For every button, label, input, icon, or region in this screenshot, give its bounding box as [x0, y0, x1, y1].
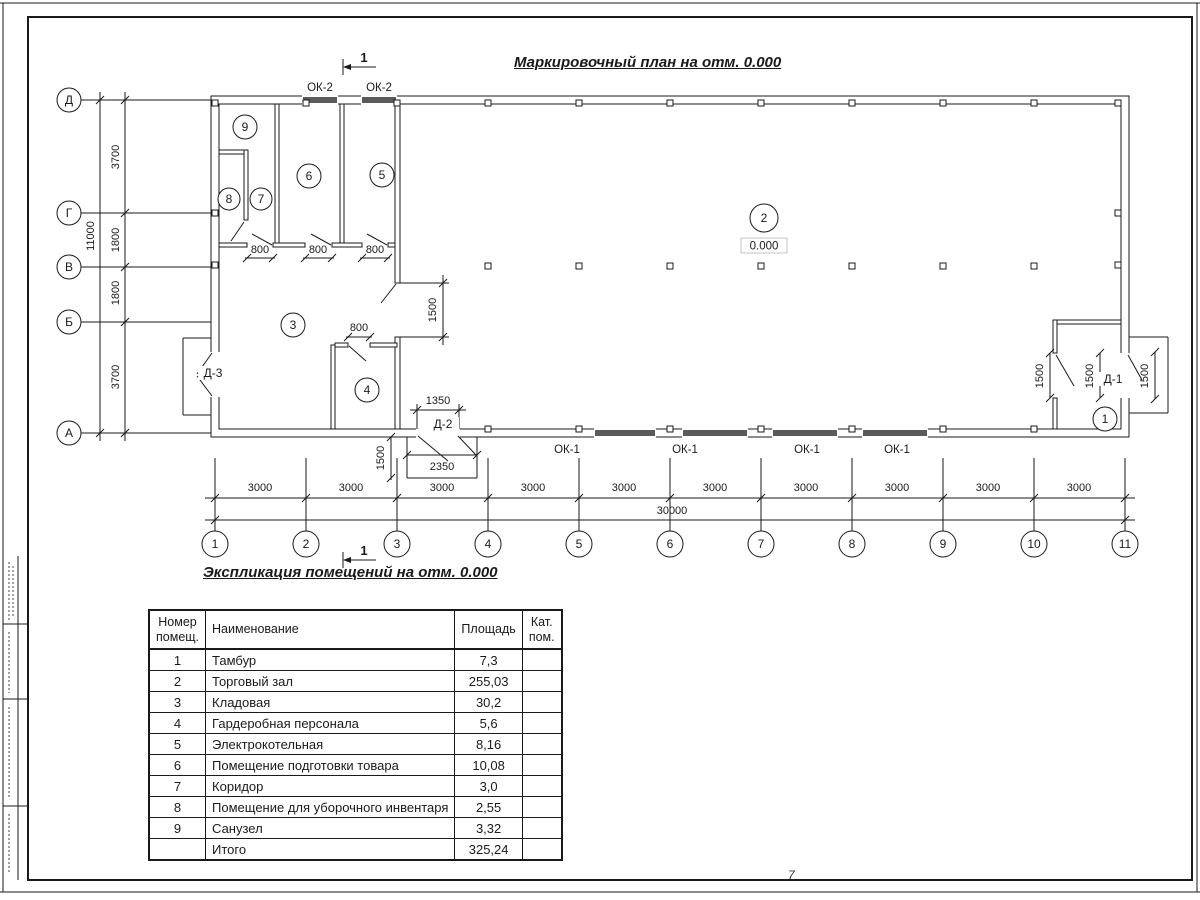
cell-number: 6: [149, 755, 206, 776]
cell-number: 4: [149, 713, 206, 734]
col-header-area: Площадь: [455, 610, 522, 649]
axis-label: 5: [576, 537, 583, 551]
table-row-total: Итого 325,24: [149, 839, 562, 861]
dim-label: 3000: [1067, 482, 1091, 494]
dim-label: 800: [251, 244, 269, 256]
dim-label: 3000: [248, 482, 272, 494]
door-label: Д-3: [204, 366, 223, 380]
cell-name: Коридор: [206, 776, 455, 797]
cell-cat: [522, 818, 561, 839]
room-bubbles: [218, 115, 1117, 431]
cell-cat: [522, 671, 561, 692]
dim-label: 800: [366, 244, 384, 256]
col-header-name: Наименование: [206, 610, 455, 649]
window-label: ОК-1: [794, 444, 820, 456]
cell-cat: [522, 776, 561, 797]
dim-label: 3000: [430, 482, 454, 494]
cell-name: Электрокотельная: [206, 734, 455, 755]
dim-label: 3000: [521, 482, 545, 494]
room-schedule-table: Номер помещ. Наименование Площадь Кат. п…: [148, 609, 563, 861]
dim-label: 3000: [976, 482, 1000, 494]
cell-area: 10,08: [455, 755, 522, 776]
table-row: 8 Помещение для уборочного инвентаря 2,5…: [149, 797, 562, 818]
page-title: Маркировочный план на отм. 0.000: [514, 54, 781, 71]
columns: [212, 100, 1121, 432]
table-row: 9 Санузел 3,32: [149, 818, 562, 839]
dim-label: 1800: [110, 281, 122, 305]
cell-cat: [522, 713, 561, 734]
cell-name: Помещение подготовки товара: [206, 755, 455, 776]
axis-label: 6: [667, 537, 674, 551]
elevation-mark: 0.000: [750, 241, 779, 253]
dim-label: 1500: [1034, 364, 1046, 388]
cell-name: Гардеробная персонала: [206, 713, 455, 734]
cell-area: 3,32: [455, 818, 522, 839]
room-number: 3: [290, 318, 297, 332]
section-label: 1: [360, 543, 367, 558]
axis-label: В: [65, 260, 73, 274]
axis-grid-left: [57, 88, 211, 445]
dim-label: 1500: [1084, 364, 1096, 388]
axis-label: 11: [1119, 537, 1132, 551]
cell-number: 8: [149, 797, 206, 818]
window-label: ОК-1: [672, 444, 698, 456]
room-number: 7: [258, 192, 265, 206]
axis-label: 9: [940, 537, 947, 551]
col-header-cat: Кат. пом.: [522, 610, 561, 649]
cell-area: 7,3: [455, 649, 522, 671]
cell-area: 255,03: [455, 671, 522, 692]
dim-label: 30000: [657, 505, 688, 517]
axis-label: Б: [65, 315, 73, 329]
dim-label: 800: [309, 244, 327, 256]
room-bubble-labels: 9 6 5 8 7 3 4 2 1 0.000: [226, 120, 1109, 426]
dim-label: 2350: [430, 461, 454, 473]
cell-number: 7: [149, 776, 206, 797]
cell-cat: [522, 692, 561, 713]
axis-grid-bottom-labels: 1 2 3 4 5 6 7 8 9 10 11 3000 3000 3000 3…: [212, 482, 1132, 551]
axis-label: 3: [394, 537, 401, 551]
cell-name: Кладовая: [206, 692, 455, 713]
cell-cat: [522, 734, 561, 755]
dim-label: 1500: [427, 298, 439, 322]
cell-number: [149, 839, 206, 861]
drawing-sheet: 1 2 3 4 5 6 7 8 9 10 11 3000 3000 3000 3…: [0, 0, 1200, 900]
cell-cat: [522, 649, 561, 671]
room-number: 5: [379, 168, 386, 182]
axis-label: 1: [212, 537, 219, 551]
page-mark: 7: [788, 868, 795, 882]
table-row: 7 Коридор 3,0: [149, 776, 562, 797]
dim-label: 3700: [110, 145, 122, 169]
door-label: Д-2: [434, 417, 453, 431]
cell-area: 5,6: [455, 713, 522, 734]
axis-label: А: [65, 426, 73, 440]
cell-number: 1: [149, 649, 206, 671]
dim-label: 3000: [703, 482, 727, 494]
room-number: 8: [226, 192, 233, 206]
table-row: 6 Помещение подготовки товара 10,08: [149, 755, 562, 776]
axis-label: 4: [485, 537, 492, 551]
dim-label: 1800: [110, 228, 122, 252]
axis-label: 10: [1027, 537, 1041, 551]
cell-name: Санузел: [206, 818, 455, 839]
cell-name: Тамбур: [206, 649, 455, 671]
cell-name: Итого: [206, 839, 455, 861]
room-number: 4: [364, 383, 371, 397]
room-number: 9: [242, 120, 249, 134]
window-label: ОК-2: [366, 82, 392, 94]
col-header-number: Номер помещ.: [149, 610, 206, 649]
cell-number: 5: [149, 734, 206, 755]
axis-label: 7: [758, 537, 765, 551]
axis-label: 2: [303, 537, 310, 551]
room-number: 6: [306, 169, 313, 183]
cell-area: 2,55: [455, 797, 522, 818]
table-row: 3 Кладовая 30,2: [149, 692, 562, 713]
cell-cat: [522, 839, 561, 861]
cell-number: 3: [149, 692, 206, 713]
door-label: Д-1: [1104, 372, 1123, 386]
window-label: ОК-1: [554, 444, 580, 456]
window-label: ОК-2: [307, 82, 333, 94]
dim-label: 800: [350, 322, 368, 334]
cell-number: 9: [149, 818, 206, 839]
cell-cat: [522, 797, 561, 818]
dim-label: 1500: [375, 446, 387, 470]
dim-label: 3000: [794, 482, 818, 494]
door-name-labels: [198, 366, 1130, 431]
dim-label: 3000: [885, 482, 909, 494]
axis-label: Г: [66, 206, 73, 220]
cell-number: 2: [149, 671, 206, 692]
table-row: 5 Электрокотельная 8,16: [149, 734, 562, 755]
dim-label: 3000: [339, 482, 363, 494]
cell-area: 30,2: [455, 692, 522, 713]
cell-cat: [522, 755, 561, 776]
door-leaves: [197, 222, 1142, 461]
cell-area: 8,16: [455, 734, 522, 755]
dim-label: 1500: [1139, 364, 1151, 388]
door-name-label-texts: Д-3 Д-2 Д-1: [204, 366, 1123, 431]
table-row: 1 Тамбур 7,3: [149, 649, 562, 671]
table-title: Экспликация помещений на отм. 0.000: [203, 564, 498, 581]
dim-label: 3000: [612, 482, 636, 494]
dim-label: 3700: [110, 365, 122, 389]
axis-label: Д: [65, 93, 73, 107]
axis-label: 8: [849, 537, 856, 551]
window-label: ОК-1: [884, 444, 910, 456]
dim-label: 11000: [85, 221, 97, 251]
table-header-row: Номер помещ. Наименование Площадь Кат. п…: [149, 610, 562, 649]
table-row: 2 Торговый зал 255,03: [149, 671, 562, 692]
cell-area: 325,24: [455, 839, 522, 861]
dim-label: 1350: [426, 395, 450, 407]
table-row: 4 Гардеробная персонала 5,6: [149, 713, 562, 734]
title-strip-illegible-text: [9, 562, 13, 872]
cell-name: Торговый зал: [206, 671, 455, 692]
cell-name: Помещение для уборочного инвентаря: [206, 797, 455, 818]
room-number: 2: [761, 211, 768, 225]
room-number: 1: [1102, 412, 1109, 426]
section-label: 1: [360, 50, 367, 65]
cell-area: 3,0: [455, 776, 522, 797]
